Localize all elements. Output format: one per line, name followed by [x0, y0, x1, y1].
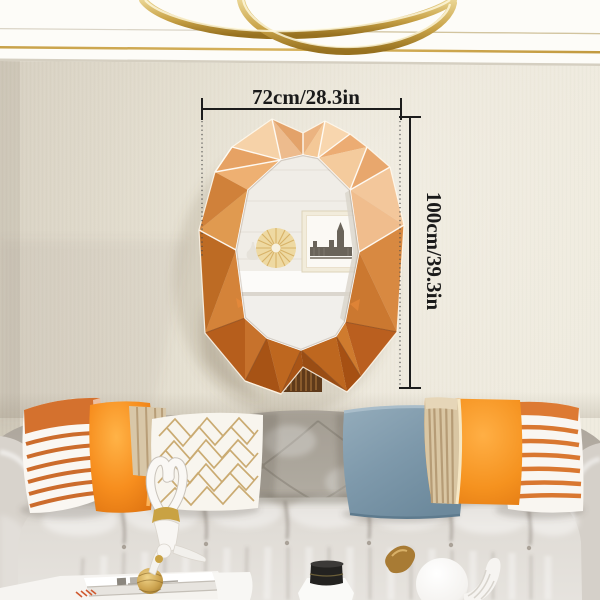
svg-text:72cm/28.3in: 72cm/28.3in	[252, 85, 360, 109]
svg-text:100cm/39.3in: 100cm/39.3in	[422, 192, 446, 311]
